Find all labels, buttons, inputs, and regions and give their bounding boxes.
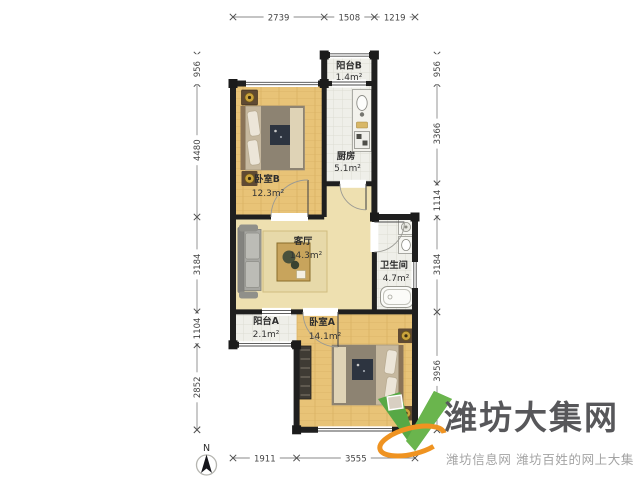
dim-label: 1104 — [193, 318, 203, 340]
room-label: 阳台B — [336, 60, 362, 72]
dim-label: 4480 — [193, 139, 203, 161]
window-icon — [239, 341, 291, 348]
room-area: 12.3m² — [252, 189, 285, 199]
window-icon — [318, 426, 392, 433]
dim-label: 956 — [193, 61, 203, 77]
sliding-door-icon — [262, 308, 291, 316]
watermark-brand: 潍坊大集网 — [444, 400, 636, 442]
dim-label: 1911 — [254, 455, 276, 465]
dimension-right: 956 3366 1114 3184 3956 — [431, 52, 443, 433]
room-label: 卧室B — [254, 173, 280, 185]
faucet-icon — [360, 112, 364, 116]
room-label: 卧室A — [309, 316, 336, 328]
dim-label: 956 — [433, 61, 443, 77]
dim-label: 2852 — [193, 376, 203, 398]
room-area: 2.1m² — [253, 330, 280, 340]
room-label: 客厅 — [293, 235, 313, 247]
north-compass-icon: N — [197, 443, 217, 475]
dim-label: 3956 — [433, 360, 443, 382]
room-area: 4.7m² — [383, 274, 410, 284]
bathtub-icon — [381, 287, 414, 308]
dim-label: 3184 — [193, 254, 203, 276]
bed-icon — [241, 106, 305, 170]
coffee-table-icon — [277, 243, 310, 281]
sofa-icon — [238, 225, 262, 299]
room-area: 14.3m² — [290, 251, 323, 261]
dim-label: 3555 — [345, 455, 367, 465]
room-area: 1.4m² — [336, 73, 363, 83]
dim-label: 2739 — [268, 14, 290, 24]
dim-label: 3366 — [433, 123, 443, 145]
living-furniture — [238, 225, 328, 299]
dim-label: 1219 — [384, 14, 406, 24]
sink-icon — [357, 96, 367, 111]
wardrobe-icon — [299, 346, 311, 399]
window-icon — [330, 52, 369, 59]
room-area: 5.1m² — [334, 164, 361, 174]
window-icon — [246, 80, 318, 87]
window-icon — [412, 262, 419, 288]
hall-floor — [324, 184, 374, 217]
room-label: 厨房 — [337, 150, 356, 162]
room-area: 14.1m² — [309, 332, 342, 342]
room-label: 卫生间 — [380, 259, 408, 271]
room-label: 阳台A — [253, 315, 280, 327]
kitchen-furniture — [353, 90, 372, 152]
north-label: N — [203, 443, 210, 454]
watermark-tagline: 潍坊信息网 潍坊百姓的网上大集 — [446, 449, 638, 468]
floorplan-page: 阳台B 1.4m² 厨房 5.1m² 卧室B 12.3m² 客厅 14.3m² … — [0, 0, 640, 480]
dim-label: 1508 — [338, 14, 360, 24]
dimension-left: 956 4480 3184 1104 2852 — [191, 52, 203, 433]
dim-label: 1114 — [433, 190, 443, 212]
dimension-top: 2739 1508 1219 — [230, 11, 418, 24]
dim-label: 3184 — [433, 254, 443, 276]
